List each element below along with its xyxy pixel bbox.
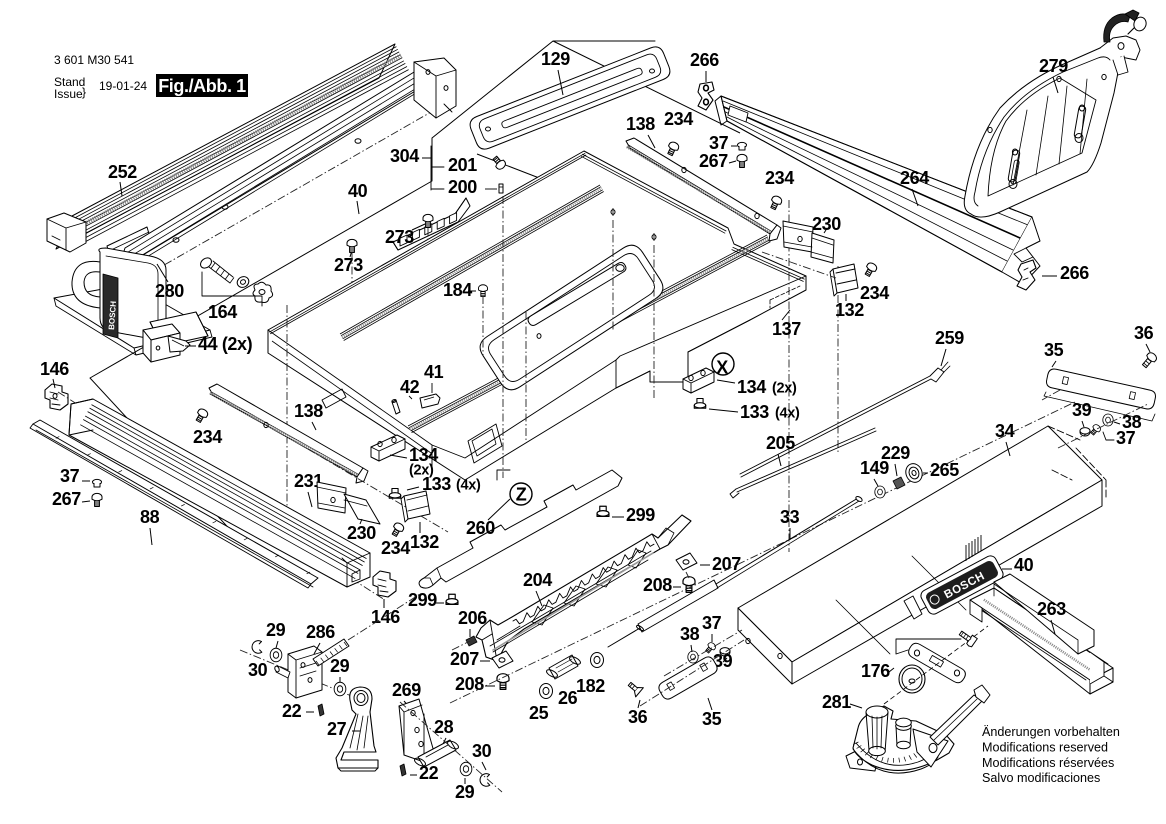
svg-text:184: 184 (443, 280, 472, 300)
svg-text:41: 41 (424, 362, 444, 382)
svg-text:279: 279 (1039, 56, 1068, 76)
svg-text:37: 37 (60, 466, 80, 486)
svg-text:37: 37 (709, 133, 729, 153)
svg-text:146: 146 (371, 607, 400, 627)
svg-text:260: 260 (466, 518, 495, 538)
svg-text:205: 205 (766, 433, 795, 453)
svg-text:25: 25 (529, 703, 549, 723)
svg-text:234: 234 (381, 538, 410, 558)
svg-text:234: 234 (765, 168, 794, 188)
svg-text:}: } (82, 85, 86, 99)
svg-text:204: 204 (523, 570, 552, 590)
svg-text:34: 34 (995, 421, 1015, 441)
svg-text:27: 27 (327, 719, 347, 739)
svg-text:280: 280 (155, 281, 184, 301)
svg-text:182: 182 (576, 676, 605, 696)
svg-text:138: 138 (294, 401, 323, 421)
svg-text:19-01-24: 19-01-24 (99, 79, 147, 93)
svg-text:267: 267 (699, 151, 728, 171)
svg-text:40: 40 (348, 181, 368, 201)
svg-text:22: 22 (419, 763, 439, 783)
svg-text:201: 201 (448, 155, 477, 175)
svg-text:266: 266 (690, 50, 719, 70)
svg-text:Modifications reserved: Modifications reserved (982, 740, 1108, 754)
svg-text:259: 259 (935, 328, 964, 348)
svg-text:36: 36 (1134, 323, 1154, 343)
svg-text:264: 264 (900, 168, 929, 188)
svg-text:265: 265 (930, 460, 959, 480)
svg-text:230: 230 (812, 214, 841, 234)
svg-text:88: 88 (140, 507, 160, 527)
svg-text:234: 234 (664, 109, 693, 129)
svg-text:286: 286 (306, 622, 335, 642)
svg-text:267: 267 (52, 489, 81, 509)
svg-text:229: 229 (881, 443, 910, 463)
svg-text:3 601 M30 541: 3 601 M30 541 (54, 53, 134, 67)
svg-text:281: 281 (822, 692, 851, 712)
svg-text:Salvo modificaciones: Salvo modificaciones (982, 771, 1100, 785)
svg-text:263: 263 (1037, 599, 1066, 619)
svg-text:22: 22 (282, 701, 302, 721)
svg-text:X: X (716, 358, 728, 378)
svg-text:304: 304 (390, 146, 419, 166)
svg-text:164: 164 (208, 302, 237, 322)
svg-text:37: 37 (702, 613, 722, 633)
svg-text:129: 129 (541, 49, 570, 69)
svg-text:(4x): (4x) (775, 406, 800, 422)
svg-text:266: 266 (1060, 263, 1089, 283)
svg-text:134: 134 (737, 377, 766, 397)
svg-text:26: 26 (558, 688, 578, 708)
svg-text:30: 30 (248, 660, 268, 680)
svg-text:273: 273 (385, 227, 414, 247)
svg-text:208: 208 (643, 575, 672, 595)
svg-text:29: 29 (266, 620, 286, 640)
svg-text:273: 273 (334, 255, 363, 275)
svg-text:132: 132 (410, 532, 439, 552)
svg-text:30: 30 (472, 741, 492, 761)
svg-text:146: 146 (40, 359, 69, 379)
svg-text:(2x): (2x) (772, 381, 797, 397)
svg-text:35: 35 (702, 709, 722, 729)
svg-text:Änderungen vorbehalten: Änderungen vorbehalten (982, 725, 1120, 739)
svg-text:252: 252 (108, 162, 137, 182)
svg-text:37: 37 (1116, 428, 1136, 448)
svg-text:234: 234 (860, 283, 889, 303)
svg-text:35: 35 (1044, 340, 1064, 360)
svg-text:Fig./Abb. 1: Fig./Abb. 1 (158, 76, 246, 96)
svg-text:29: 29 (455, 782, 475, 802)
svg-text:38: 38 (680, 624, 700, 644)
svg-text:137: 137 (772, 319, 801, 339)
svg-text:42: 42 (400, 377, 420, 397)
svg-text:Issue: Issue (54, 87, 83, 101)
svg-text:230: 230 (347, 523, 376, 543)
svg-text:200: 200 (448, 177, 477, 197)
svg-text:138: 138 (626, 114, 655, 134)
svg-text:299: 299 (626, 505, 655, 525)
svg-text:(4x): (4x) (456, 478, 481, 494)
svg-text:29: 29 (330, 656, 350, 676)
svg-text:33: 33 (780, 507, 800, 527)
svg-text:39: 39 (1072, 400, 1092, 420)
svg-text:36: 36 (628, 707, 648, 727)
svg-text:207: 207 (450, 649, 479, 669)
svg-text:133: 133 (740, 402, 769, 422)
svg-text:Modifications réservées: Modifications réservées (982, 756, 1114, 770)
svg-text:40: 40 (1014, 555, 1034, 575)
svg-text:44 (2x): 44 (2x) (198, 334, 253, 354)
svg-text:132: 132 (835, 300, 864, 320)
svg-text:269: 269 (392, 680, 421, 700)
svg-text:176: 176 (861, 661, 890, 681)
svg-text:208: 208 (455, 674, 484, 694)
svg-text:299: 299 (408, 590, 437, 610)
svg-text:234: 234 (193, 427, 222, 447)
svg-text:206: 206 (458, 608, 487, 628)
svg-text:Z: Z (516, 485, 527, 505)
